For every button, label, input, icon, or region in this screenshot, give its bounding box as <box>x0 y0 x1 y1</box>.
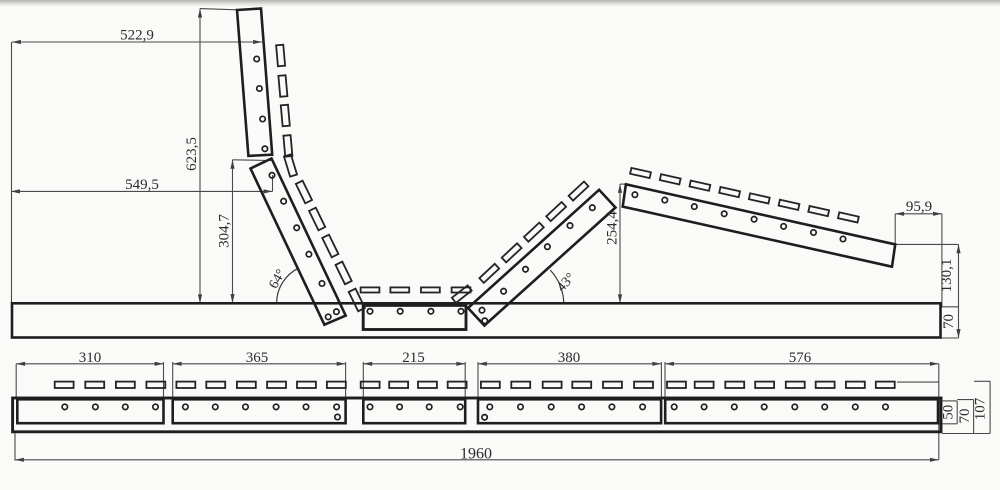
svg-text:549,5: 549,5 <box>125 177 159 193</box>
svg-text:70: 70 <box>957 409 973 424</box>
svg-text:254,4: 254,4 <box>605 211 621 245</box>
svg-text:107: 107 <box>973 397 989 420</box>
svg-text:215: 215 <box>402 350 425 366</box>
svg-text:576: 576 <box>789 350 812 366</box>
svg-text:70: 70 <box>941 314 957 329</box>
svg-text:95,9: 95,9 <box>906 199 932 215</box>
svg-text:304,7: 304,7 <box>217 214 233 248</box>
svg-text:1960: 1960 <box>460 446 492 463</box>
svg-text:310: 310 <box>79 350 102 366</box>
svg-text:130,1: 130,1 <box>939 259 955 293</box>
svg-text:522,9: 522,9 <box>120 28 154 44</box>
svg-text:365: 365 <box>246 350 269 366</box>
svg-text:623,5: 623,5 <box>184 137 200 171</box>
svg-text:380: 380 <box>558 350 581 366</box>
svg-text:50: 50 <box>941 405 957 420</box>
